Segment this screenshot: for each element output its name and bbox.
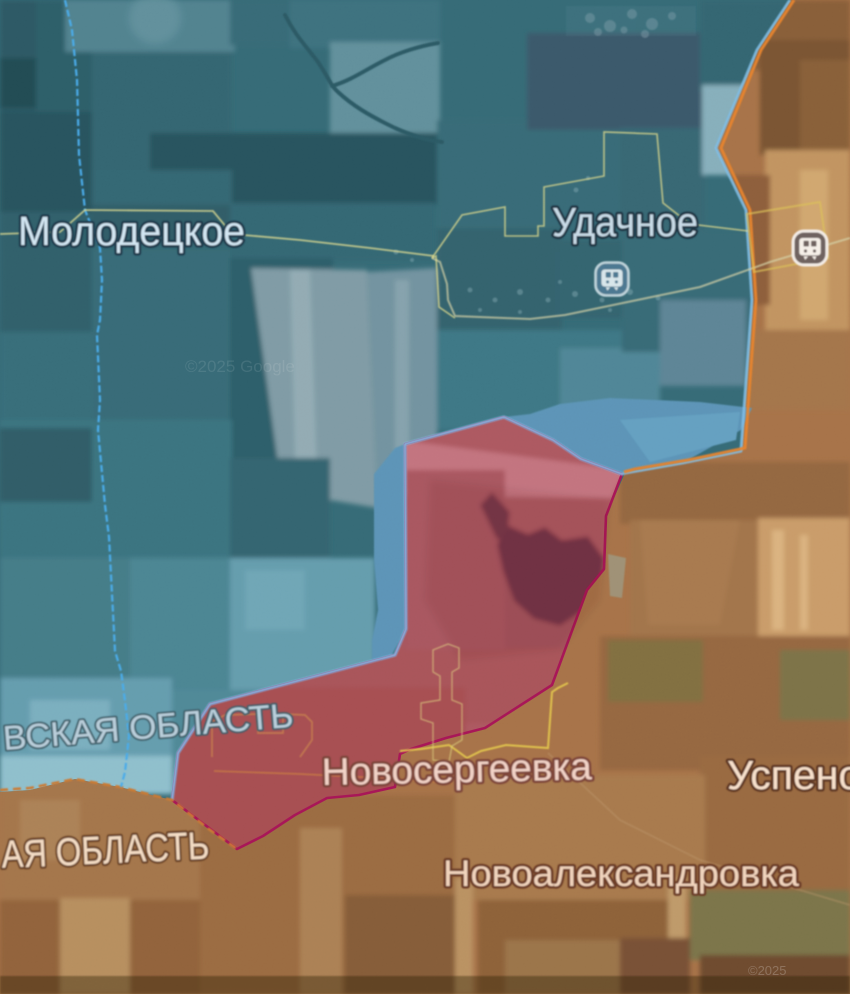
svg-text:Молодецкое: Молодецкое [18,208,245,254]
svg-text:Новоалександровка: Новоалександровка [443,853,799,894]
svg-text:Новосергеевка: Новосергеевка [321,746,593,794]
svg-text:Удачное: Удачное [552,199,698,245]
svg-text:Успеновка: Успеновка [727,752,850,798]
